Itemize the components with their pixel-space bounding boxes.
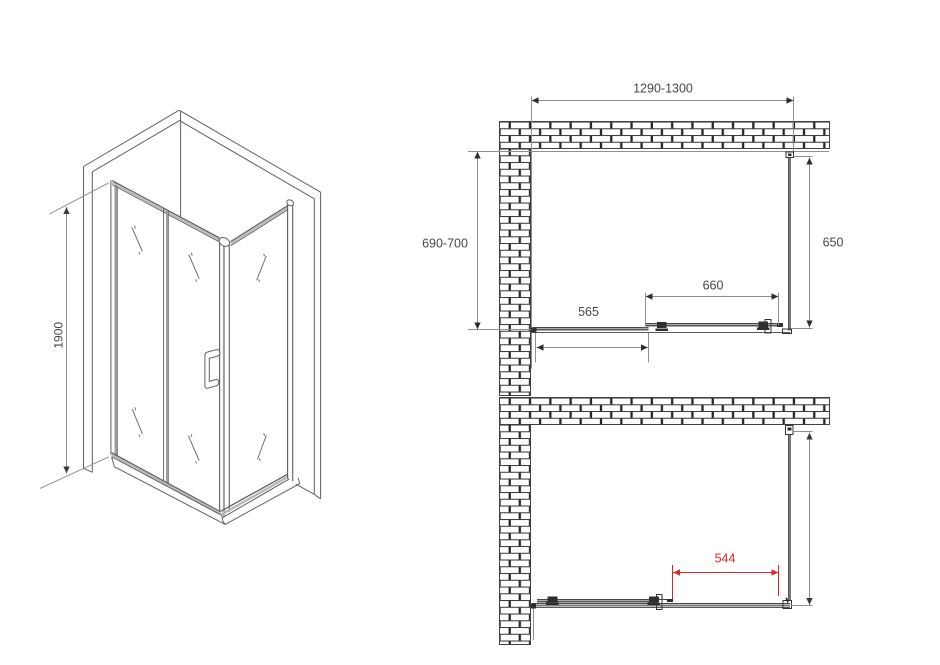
svg-text:1900: 1900 bbox=[51, 322, 65, 349]
svg-text:660: 660 bbox=[703, 279, 724, 293]
svg-text:1290-1300: 1290-1300 bbox=[633, 82, 693, 96]
svg-text:544: 544 bbox=[715, 551, 736, 565]
svg-text:650: 650 bbox=[823, 236, 844, 250]
svg-text:690-700: 690-700 bbox=[422, 237, 468, 251]
svg-text:565: 565 bbox=[578, 305, 599, 319]
